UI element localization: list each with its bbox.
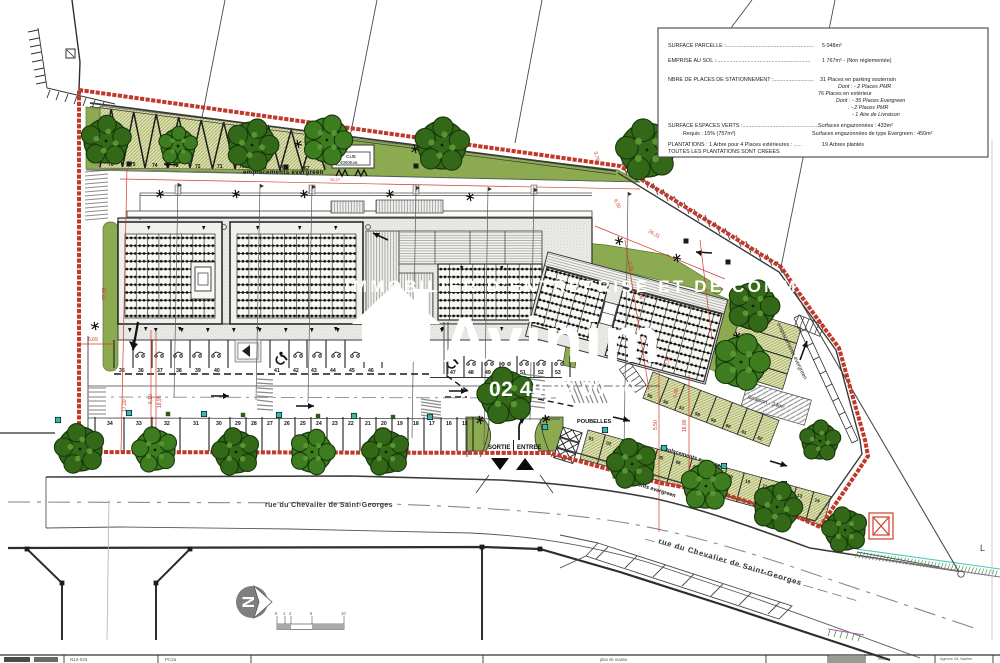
svg-text:32: 32 xyxy=(164,421,170,427)
svg-text:. - 2 Places PMR: . - 2 Places PMR xyxy=(848,105,889,111)
svg-text:Surfaces engazonnées : 4: Surfaces engazonnées : 433m² xyxy=(818,123,893,129)
svg-text:33: 33 xyxy=(136,421,142,427)
svg-text:Agence 43, Nantes: Agence 43, Nantes xyxy=(940,657,972,661)
svg-text:18: 18 xyxy=(413,421,419,427)
svg-text:POUBELLES: POUBELLES xyxy=(577,419,611,425)
svg-text:17: 17 xyxy=(429,421,435,427)
svg-text:6,69: 6,69 xyxy=(88,337,98,343)
svg-text:SORTIE: SORTIE xyxy=(488,445,510,451)
svg-text:16: 16 xyxy=(446,421,452,427)
svg-text:Dont : - 2 Places PMR: Dont : - 2 Places PMR xyxy=(838,84,891,90)
svg-text:38: 38 xyxy=(176,368,182,374)
svg-text:SURFACE ESPACES VERTS :.......: SURFACE ESPACES VERTS :.................… xyxy=(668,123,819,129)
svg-text:74: 74 xyxy=(152,163,158,169)
svg-text:23: 23 xyxy=(332,421,338,427)
svg-text:plan de masse: plan de masse xyxy=(600,657,628,662)
svg-text:40: 40 xyxy=(214,368,220,374)
svg-text:21: 21 xyxy=(365,421,371,427)
svg-text:10: 10 xyxy=(341,611,346,616)
svg-text:71: 71 xyxy=(217,164,223,170)
svg-text:36: 36 xyxy=(138,368,144,374)
svg-text:NBRE DE PLACES DE STATIONNEMEN: NBRE DE PLACES DE STATIONNEMENT :.......… xyxy=(668,77,814,83)
svg-text:Requis : 15% (757m²): Requis : 15% (757m²) xyxy=(683,131,736,137)
svg-text:28: 28 xyxy=(251,421,257,427)
svg-text:37: 37 xyxy=(157,368,163,374)
svg-text:22: 22 xyxy=(348,421,354,427)
svg-text:29: 29 xyxy=(235,421,241,427)
svg-text:infos :: infos : xyxy=(878,657,888,661)
svg-text:26,27: 26,27 xyxy=(330,177,341,182)
svg-text:EMPRISE AU SOL :..............: EMPRISE AU SOL :........................… xyxy=(668,58,810,64)
svg-text:45: 45 xyxy=(349,368,355,374)
svg-text:1 767m² - (Non réglementée): 1 767m² - (Non réglementée) xyxy=(822,58,892,64)
svg-text:4000Kva: 4000Kva xyxy=(340,160,358,165)
svg-text:02 40 89 00 00: 02 40 89 00 00 xyxy=(489,378,636,401)
svg-text:31: 31 xyxy=(193,421,199,427)
svg-text:5,50: 5,50 xyxy=(653,420,659,430)
svg-text:43: 43 xyxy=(311,368,317,374)
svg-text:19 Arbres plantés: 19 Arbres plantés xyxy=(822,142,864,148)
svg-text:41: 41 xyxy=(274,368,280,374)
svg-text:24: 24 xyxy=(316,421,322,427)
svg-text:35: 35 xyxy=(119,368,125,374)
svg-text:19: 19 xyxy=(397,421,403,427)
svg-text:20: 20 xyxy=(381,421,387,427)
svg-text:30: 30 xyxy=(216,421,222,427)
svg-text:44: 44 xyxy=(330,368,336,374)
svg-text:6,10: 6,10 xyxy=(148,394,154,404)
svg-text:25: 25 xyxy=(300,421,306,427)
svg-text:SURFACE PARCELLE :............: SURFACE PARCELLE :......................… xyxy=(668,43,814,49)
svg-text:73: 73 xyxy=(173,163,179,169)
svg-text:26: 26 xyxy=(284,421,290,427)
svg-text:ENTREE: ENTREE xyxy=(517,445,541,451)
svg-text:- 1 Aire de Livraison: - 1 Aire de Livraison xyxy=(852,112,900,118)
svg-text:72: 72 xyxy=(195,164,201,170)
svg-text:39: 39 xyxy=(195,368,201,374)
svg-text:rue du Chevalier de Saint-Geor: rue du Chevalier de Saint-Georges xyxy=(265,502,393,509)
svg-text:77,55: 77,55 xyxy=(102,287,108,300)
svg-text:34: 34 xyxy=(107,421,113,427)
svg-text:Surfaces engazonnées de type E: Surfaces engazonnées de type Evergreen :… xyxy=(812,131,933,137)
svg-text:Dont : - 35 Places Evergreen: Dont : - 35 Places Evergreen xyxy=(836,98,905,104)
svg-text:L: L xyxy=(980,543,985,553)
svg-text:TOUTES LES PLANTATIONS SONT CR: TOUTES LES PLANTATIONS SONT CREEES xyxy=(668,149,780,155)
svg-text:PC2a: PC2a xyxy=(165,657,177,662)
svg-text:Avinim: Avinim xyxy=(442,304,662,376)
svg-text:42: 42 xyxy=(293,368,299,374)
svg-text:76 Places en extérieur: 76 Places en extérieur xyxy=(818,91,872,97)
svg-text:18,86: 18,86 xyxy=(682,419,688,432)
svg-text:N: N xyxy=(239,596,258,608)
svg-text:31 Places en parking souterrai: 31 Places en parking souterrain xyxy=(820,77,896,83)
svg-text:18,95: 18,95 xyxy=(157,395,163,408)
svg-text:27: 27 xyxy=(267,421,273,427)
svg-text:PLANTATIONS : 1 Arbre pour 4 P: PLANTATIONS : 1 Arbre pour 4 Places exté… xyxy=(668,142,802,148)
svg-text:46: 46 xyxy=(368,368,374,374)
svg-text:5 048m²: 5 048m² xyxy=(822,43,842,49)
svg-text:N13-033: N13-033 xyxy=(70,657,88,662)
